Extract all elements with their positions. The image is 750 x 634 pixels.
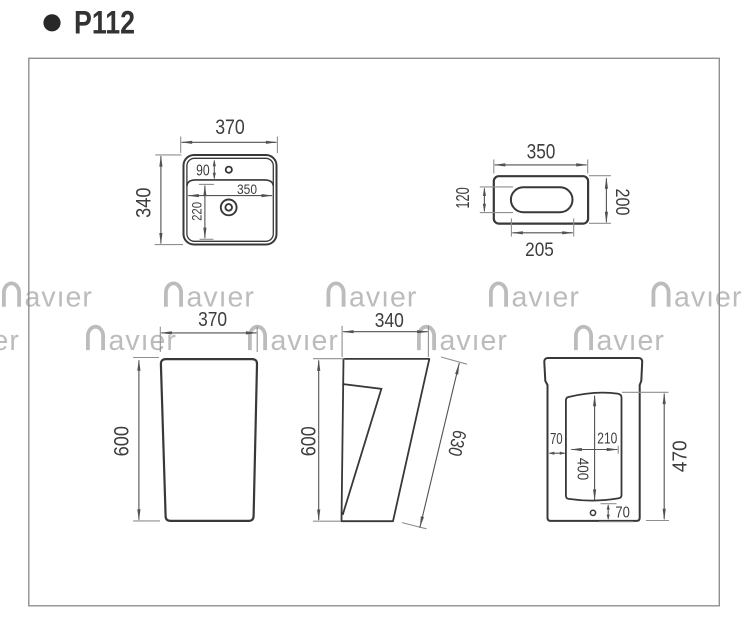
svg-text:600: 600	[110, 426, 133, 456]
svg-text:avıer: avıer	[597, 325, 665, 357]
svg-text:avıer: avıer	[349, 282, 417, 314]
svg-text:90: 90	[196, 163, 210, 180]
svg-text:400: 400	[573, 458, 590, 480]
svg-text:210: 210	[597, 430, 617, 447]
svg-text:avıer: avıer	[674, 282, 742, 314]
svg-text:P112: P112	[74, 5, 135, 41]
svg-text:avıer: avıer	[271, 325, 339, 357]
svg-text:200: 200	[611, 189, 633, 216]
svg-text:350: 350	[527, 141, 556, 164]
svg-text:600: 600	[297, 426, 320, 456]
svg-text:340: 340	[375, 310, 404, 332]
svg-text:avıer: avıer	[440, 325, 508, 357]
svg-text:avıer: avıer	[0, 325, 20, 357]
svg-text:470: 470	[669, 440, 691, 472]
svg-text:avıer: avıer	[25, 282, 93, 314]
svg-text:70: 70	[550, 431, 563, 448]
svg-text:340: 340	[133, 188, 156, 218]
svg-text:220: 220	[188, 202, 204, 221]
svg-text:370: 370	[198, 309, 227, 331]
svg-text:205: 205	[525, 239, 554, 261]
svg-text:370: 370	[215, 116, 245, 139]
svg-text:120: 120	[452, 187, 473, 209]
svg-text:avıer: avıer	[109, 325, 177, 357]
svg-text:avıer: avıer	[512, 282, 580, 314]
svg-text:350: 350	[237, 182, 257, 197]
svg-text:70: 70	[615, 505, 630, 522]
